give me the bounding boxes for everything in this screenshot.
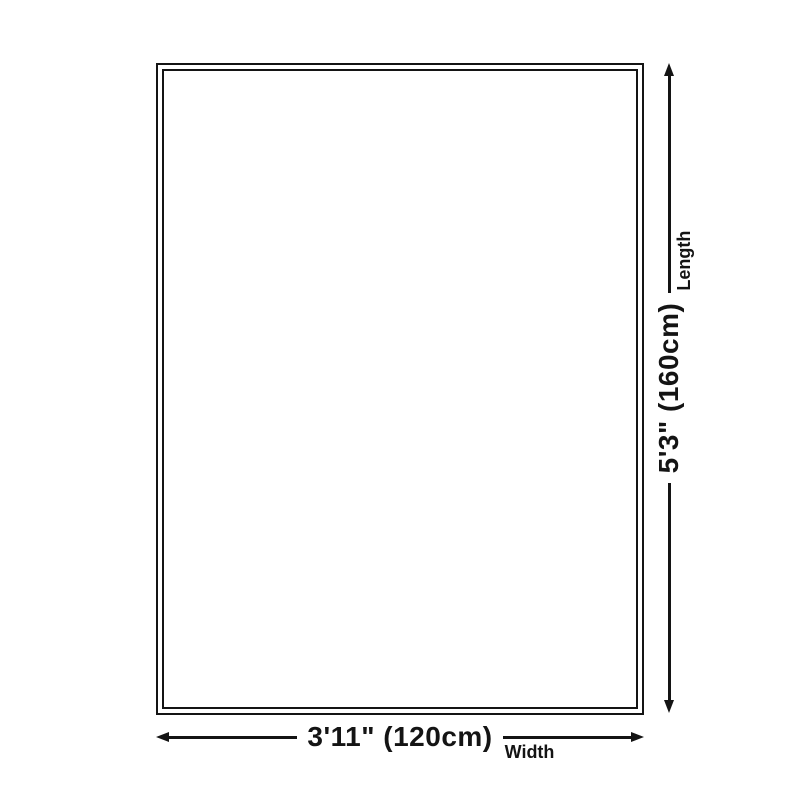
up-arrow-icon (664, 63, 674, 76)
width-dimension: 3'11" (120cm) Width (156, 715, 644, 759)
dimension-line (668, 483, 671, 701)
dimension-line (168, 736, 297, 739)
length-value: 5'3" (160cm) (655, 303, 683, 474)
length-dimension: 5'3" (160cm) Length (647, 63, 691, 713)
dimension-line (503, 736, 632, 739)
width-value: 3'11" (120cm) (307, 723, 492, 751)
right-arrow-icon (631, 732, 644, 742)
product-outline-inner-border (162, 69, 638, 709)
down-arrow-icon (664, 700, 674, 713)
dimension-line (668, 75, 671, 293)
length-arrow-top-segment: Length (647, 63, 691, 293)
length-arrow-bottom-segment (647, 483, 691, 713)
product-dimension-diagram: 3'11" (120cm) Width 5'3" (160cm) Length (0, 0, 800, 800)
product-outline (156, 63, 644, 715)
left-arrow-icon (156, 732, 169, 742)
width-arrow-right-segment: Width (503, 715, 644, 759)
length-label: Length (675, 231, 693, 291)
width-arrow-left-segment (156, 715, 297, 759)
width-label: Width (505, 743, 555, 761)
